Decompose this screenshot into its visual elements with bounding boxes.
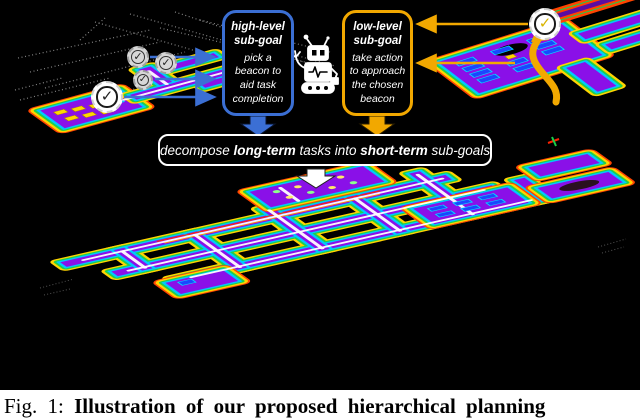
check-icon: ✓	[534, 13, 555, 34]
low-level-body: take action to approach the chosen beaco…	[348, 52, 407, 107]
goal-check-badge: ✓	[529, 8, 561, 40]
check-icon: ✓	[131, 50, 145, 64]
high-level-down-arrow	[241, 116, 275, 136]
caption-text: Illustration of our proposed hierarchica…	[74, 394, 545, 418]
check-icon: ✓	[137, 74, 149, 86]
check-badge: ✓	[133, 70, 153, 90]
low-level-down-arrow	[360, 116, 394, 136]
high-level-title: high-level sub-goal	[228, 20, 288, 49]
check-badge: ✓	[91, 81, 123, 113]
figure-canvas: high-level sub-goal pick a beacon to aid…	[0, 0, 640, 390]
caption-label: Fig. 1:	[4, 394, 64, 418]
check-badge: ✓	[127, 46, 149, 68]
check-icon: ✓	[96, 86, 117, 107]
high-level-subgoal-box: high-level sub-goal pick a beacon to aid…	[222, 10, 294, 116]
robot-icon	[291, 35, 338, 93]
robot-pose-marker	[548, 137, 559, 146]
low-level-title: low-level sub-goal	[348, 20, 407, 49]
high-level-body: pick a beacon to aid task completion	[228, 52, 288, 107]
low-level-subgoal-box: low-level sub-goal take action to approa…	[342, 10, 413, 116]
check-badge: ✓	[155, 52, 177, 74]
maps-illustration	[0, 0, 640, 390]
check-icon: ✓	[159, 56, 173, 70]
decompose-banner: decompose long-term tasks into short-ter…	[158, 134, 492, 166]
figure-caption: Fig. 1: Illustration of our proposed hie…	[4, 394, 638, 419]
